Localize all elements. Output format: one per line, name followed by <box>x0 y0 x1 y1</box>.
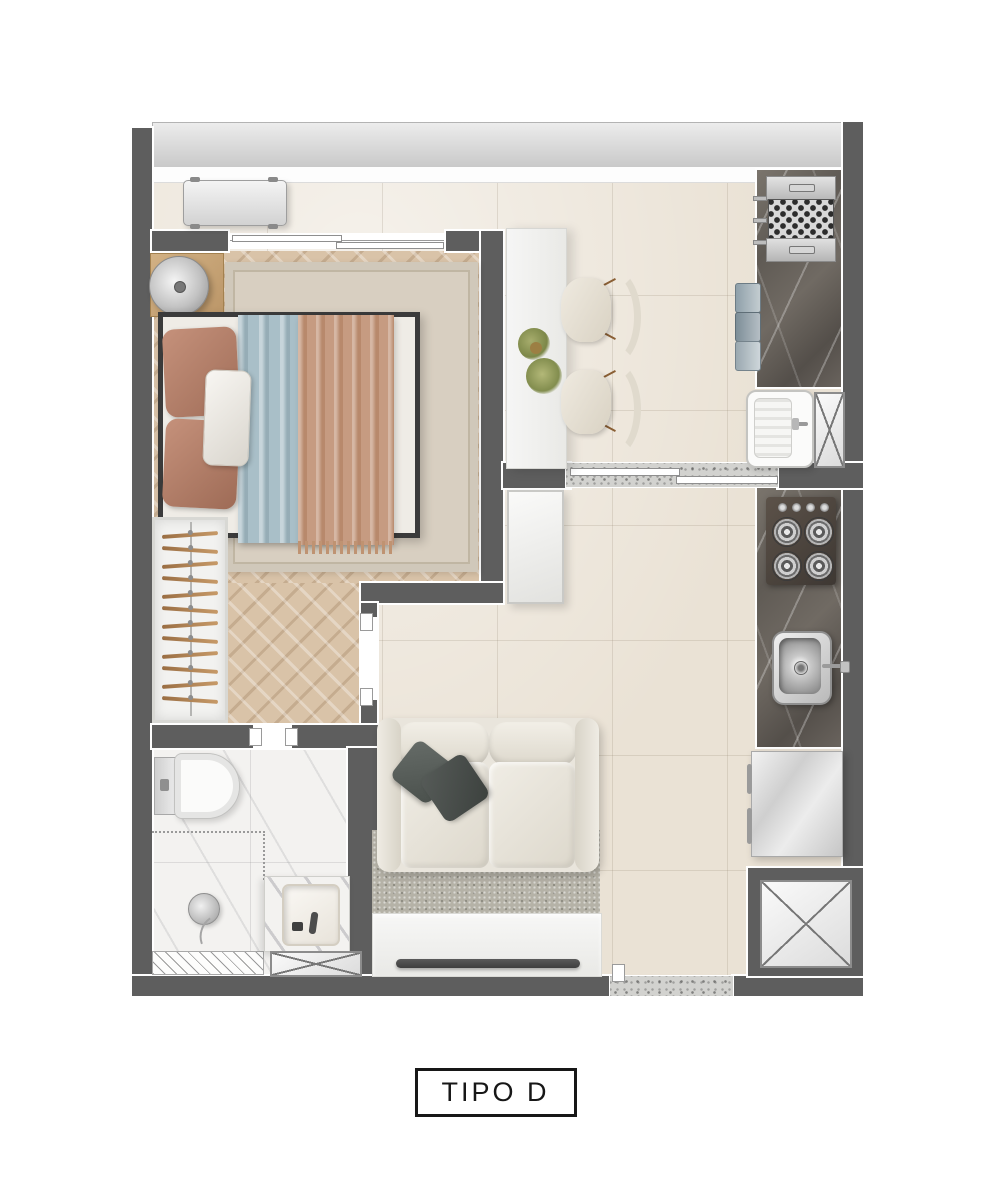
ac-unit <box>183 180 287 226</box>
entry-threshold <box>610 976 733 996</box>
counter-tray-stack <box>735 283 759 369</box>
clothes-hanger <box>162 621 218 629</box>
sofa-back-cushion <box>489 722 577 766</box>
wall-bedroom-bottom <box>361 583 503 603</box>
dining-chair-2 <box>561 358 641 446</box>
clothes-hanger <box>162 576 218 584</box>
wall-bottom-left <box>132 976 610 996</box>
table-lamp <box>149 256 209 316</box>
wall-left <box>132 128 152 996</box>
wall-bottom-right <box>733 976 863 996</box>
bed <box>158 312 420 545</box>
kitchen-sink <box>772 631 832 705</box>
bathroom-basin <box>282 884 340 946</box>
sliding-door-panel <box>676 476 778 484</box>
wall-right <box>843 122 863 996</box>
clothes-hanger <box>162 531 218 539</box>
pillow-white <box>202 369 251 467</box>
laundry-tank <box>746 390 814 468</box>
sofa-seat-cushion <box>489 762 575 868</box>
shower-boundary-h <box>152 831 265 833</box>
fridge-handle <box>747 764 752 794</box>
wardrobe-hangers <box>155 522 225 718</box>
sliding-door-threshold <box>566 463 778 487</box>
bathroom-duct <box>270 951 362 977</box>
clothes-hanger <box>162 591 218 599</box>
wall-bedroom-top-left <box>152 231 228 251</box>
shower-boundary-v <box>263 831 265 880</box>
plant-centerpiece <box>516 328 560 404</box>
fridge-handle <box>747 808 752 844</box>
wall-bedroom-right <box>481 231 503 603</box>
wall-bath-top-right <box>292 725 378 748</box>
clothes-hanger <box>162 561 218 569</box>
clothes-hanger <box>162 696 218 704</box>
throw-fringe <box>298 541 394 554</box>
sliding-door-panel <box>570 468 680 476</box>
bedroom-window <box>228 233 446 249</box>
throw-blanket <box>298 315 394 545</box>
cooktop <box>766 497 836 585</box>
wardrobe <box>152 517 228 723</box>
toilet <box>154 753 238 817</box>
basin-faucet <box>309 912 319 935</box>
bathroom-door-opening <box>253 723 292 750</box>
clothes-hanger <box>162 666 218 674</box>
plan-label-box: TIPO D <box>414 1068 576 1117</box>
sofa <box>377 718 599 872</box>
dining-chair-1 <box>561 266 641 354</box>
tv <box>396 959 580 968</box>
clothes-hanger <box>162 636 218 644</box>
sofa-arm <box>377 718 401 872</box>
grill-side-rack <box>753 192 765 250</box>
clothes-hanger <box>162 651 218 659</box>
shower-drain <box>152 951 264 975</box>
hall-door-opening <box>359 617 379 700</box>
toilet-bowl <box>174 753 240 819</box>
floor-plan: TIPO D <box>0 0 991 1196</box>
barbecue-grill <box>766 176 834 260</box>
clothes-hanger <box>162 681 218 689</box>
balcony-glass-railing <box>152 122 845 168</box>
sofa-arm <box>575 718 599 872</box>
storage-cabinet <box>507 490 564 604</box>
grill-grate <box>768 199 834 239</box>
service-shaft-small <box>814 392 845 468</box>
wall-bath-top-left <box>152 725 253 748</box>
plan-label: TIPO D <box>441 1077 549 1107</box>
clothes-hanger <box>162 606 218 614</box>
fridge <box>751 751 843 857</box>
utility-shaft <box>760 880 852 968</box>
clothes-hanger <box>162 546 218 554</box>
